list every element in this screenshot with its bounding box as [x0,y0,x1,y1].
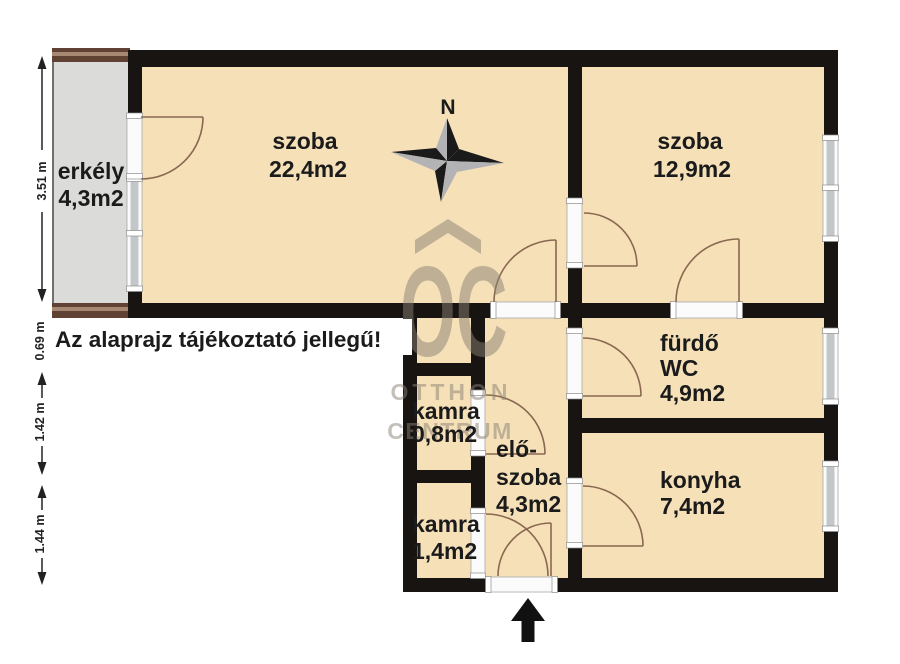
label-szoba-large-area: 22,4m2 [269,156,347,182]
label-erkely-name: erkély [58,158,125,184]
label-szoba-small-area: 12,9m2 [653,156,731,182]
dim-balcony-height: 3.51 m [35,162,49,201]
wall-kamra-right-c [471,483,485,510]
dim-offset: 0.69 m [33,322,47,361]
disclaimer: Az alaprajz tájékoztató jellegű! [48,319,412,355]
label-szoba-small-name: szoba [657,128,722,154]
label-konyha-area: 7,4m2 [660,493,725,519]
dim-mid: 1.42 m [33,403,47,442]
wall-bottom [403,578,838,592]
dimension-annotations: 3.51 m 0.69 m 1.42 m 1.44 m [33,56,49,585]
compass-north-label: N [440,96,455,119]
label-furdo-area: 4,9m2 [660,380,725,406]
label-furdo-name2: WC [660,355,698,381]
label-szoba-large-name: szoba [272,128,337,154]
dim-lower: 1.44 m [33,515,47,554]
label-eloszoba-name: elő- [496,436,537,462]
window-balcony [127,176,143,292]
entrance-arrow-icon [511,598,545,642]
window-konyha [823,461,839,532]
balcony-trim-bottom-stripe [52,307,130,311]
label-furdo-name: fürdő [660,330,719,356]
wall-furdo-konyha-divider [568,418,838,433]
floorplan: N OC OTTHON CENTRUM Az alaprajz tájékozt… [0,0,900,664]
label-kamra-large-area: 1,4m2 [412,538,477,564]
label-eloszoba-area: 4,3m2 [496,491,561,517]
window-furdo [823,328,839,405]
label-eloszoba-name2: szoba [496,464,561,490]
label-kamra-large-name: kamra [412,511,480,537]
label-erkely-area: 4,3m2 [58,185,123,211]
watermark-monogram: OC [400,240,508,383]
balcony-trim-top-stripe [52,52,130,56]
label-konyha-name: konyha [660,467,741,493]
wall-kamra-divider [403,470,485,483]
floorplan-canvas: N OC OTTHON CENTRUM Az alaprajz tájékozt… [0,0,900,664]
wall-top [128,50,838,67]
label-kamra-small-area: 0,8m2 [412,421,477,447]
disclaimer-text: Az alaprajz tájékoztató jellegű! [55,327,381,352]
window-szoba-small [823,135,839,242]
